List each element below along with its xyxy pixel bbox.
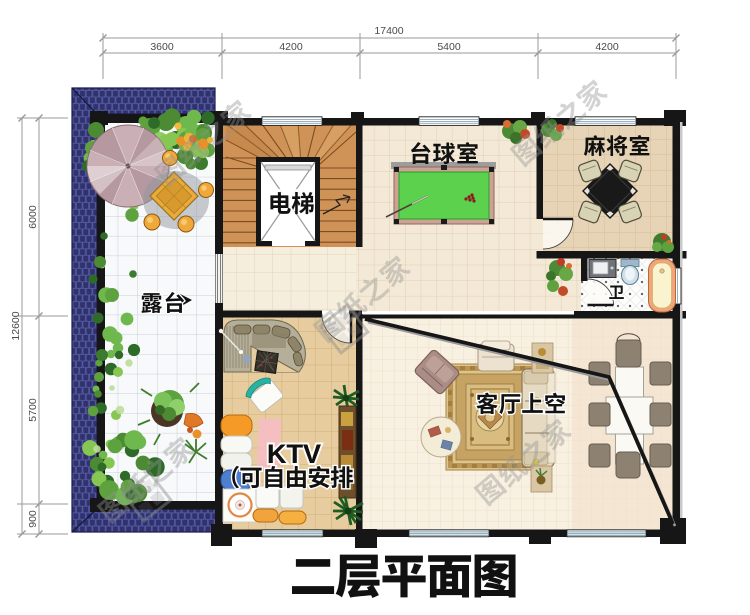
svg-text:900: 900 [27,510,39,528]
svg-text:3600: 3600 [150,41,174,53]
svg-text:4200: 4200 [279,41,303,53]
svg-text:5400: 5400 [437,41,461,53]
svg-text:6000: 6000 [27,205,39,229]
svg-text:5700: 5700 [27,398,39,422]
svg-text:4200: 4200 [595,41,619,53]
svg-text:12600: 12600 [10,311,22,340]
svg-text:KTV: KTV [267,439,321,469]
svg-text:17400: 17400 [374,25,403,37]
